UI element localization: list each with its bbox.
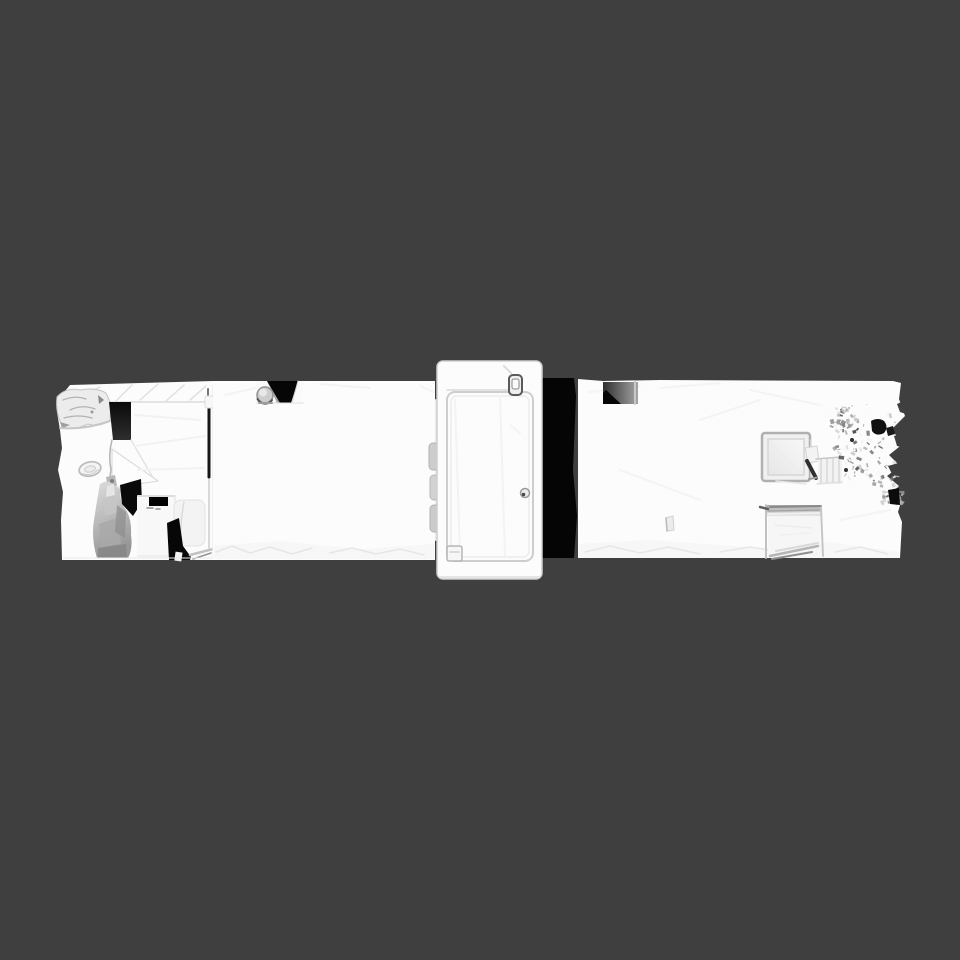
- door-handle: [509, 375, 522, 395]
- door-knob: [521, 489, 530, 498]
- skylight-frame: [762, 433, 811, 484]
- scan-hole: [542, 378, 577, 558]
- top-doorway-notch: [603, 382, 638, 404]
- floor-fleck: [666, 516, 674, 531]
- door-foot-bracket: [447, 546, 462, 561]
- detached-door-panel: [429, 361, 542, 579]
- mesh-viewport-canvas: [0, 0, 960, 960]
- middle-room-floorplate: [213, 381, 435, 560]
- radiator-streaks: [816, 457, 842, 484]
- left-room-mesh: [57, 381, 214, 562]
- rough-mesh-blob: [57, 389, 111, 428]
- scan-hole-small: [888, 488, 900, 505]
- middle-room-mesh: [213, 381, 436, 560]
- stair-opening: [760, 505, 823, 559]
- viewport-3d[interactable]: [0, 0, 960, 960]
- top-notch-with-pipe-knob: [256, 381, 303, 404]
- right-room-mesh: [578, 379, 906, 559]
